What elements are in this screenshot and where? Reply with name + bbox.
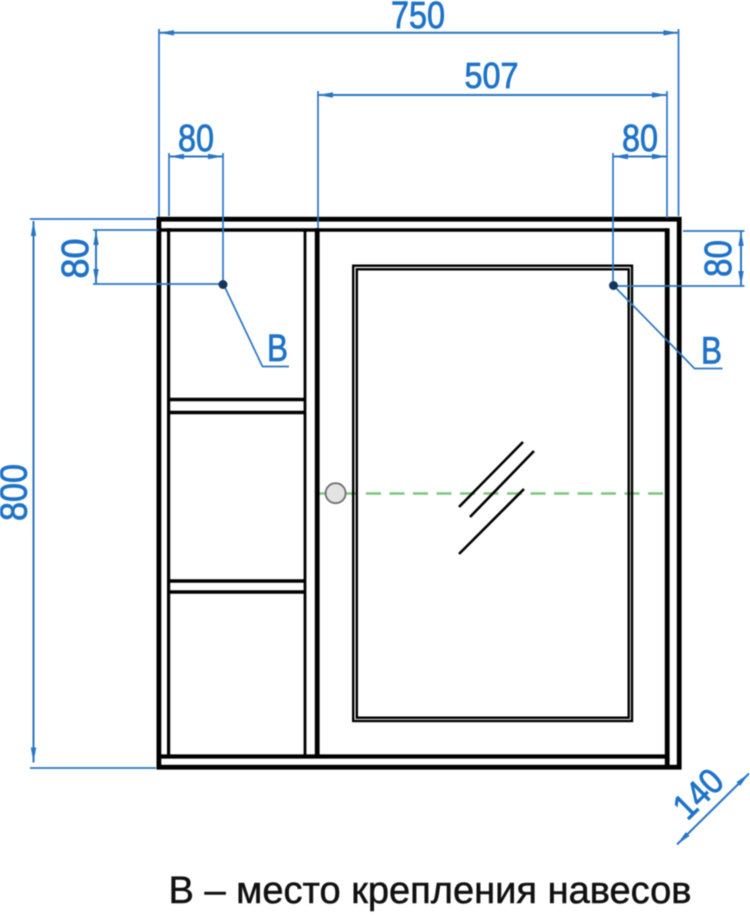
svg-text:80: 80 — [622, 118, 658, 160]
svg-text:507: 507 — [465, 55, 519, 96]
svg-text:800: 800 — [0, 464, 36, 521]
svg-text:80: 80 — [178, 118, 214, 160]
svg-text:В – место крепления навесов: В – место крепления навесов — [169, 870, 692, 912]
svg-text:80: 80 — [55, 239, 97, 279]
svg-text:В: В — [701, 331, 722, 373]
svg-text:750: 750 — [391, 0, 445, 37]
svg-text:80: 80 — [698, 240, 740, 277]
svg-text:В: В — [267, 328, 288, 370]
